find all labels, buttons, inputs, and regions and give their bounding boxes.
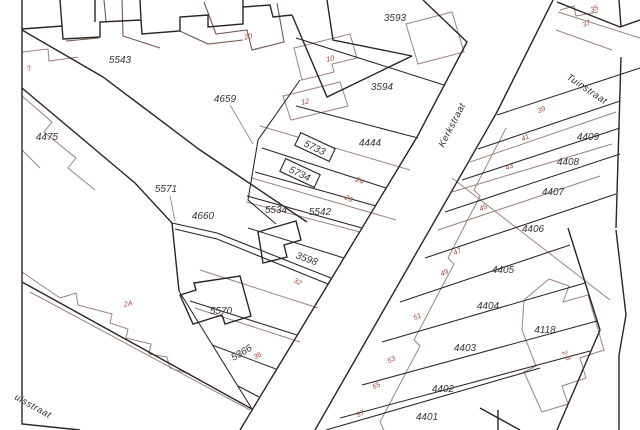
- building-house-12: [283, 82, 348, 120]
- house-number-32: 32: [292, 276, 303, 288]
- parcel-label-4406: 4406: [522, 224, 545, 235]
- building-4118: [522, 279, 604, 412]
- house-number-53: 53: [386, 354, 397, 366]
- parcel-label-3598: 3598: [294, 250, 319, 268]
- parcel-label-3593: 3593: [384, 13, 407, 24]
- parcel-label-4408: 4408: [557, 157, 580, 168]
- parcel-label-4403: 4403: [454, 343, 477, 354]
- building-4475: [22, 96, 95, 190]
- buildings-tuinstraat-north: [556, 6, 640, 50]
- house-number-2a: 2A: [122, 298, 133, 309]
- parcel-label-5542: 5542: [309, 207, 332, 218]
- parcel-label-4660: 4660: [192, 211, 215, 222]
- street-name-tuinstraat: Tuinstraat: [564, 72, 609, 107]
- house-number-26: 26: [342, 192, 354, 204]
- boundary-top-staircase: [22, 0, 292, 39]
- parcel-label-4404: 4404: [477, 301, 500, 312]
- parcel-label-4401: 4401: [416, 412, 438, 423]
- boundary-left-edge: [22, 0, 80, 430]
- parcel-label-5570: 5570: [210, 306, 233, 317]
- parcel-label-4407: 4407: [542, 187, 565, 198]
- parcel-label-5534: 5534: [265, 205, 288, 216]
- boxed-parcel-labels: 5733 5734: [280, 133, 335, 188]
- parcel-label-5733: 5733: [302, 139, 327, 159]
- label-leader-lines: [170, 105, 253, 221]
- house-number-39: 39: [536, 104, 547, 116]
- cadastral-map: 5733 5734 5543 4475 4659 5571 4660 5534 …: [0, 0, 640, 430]
- house-number-37: 37: [581, 17, 593, 29]
- street-names: Kerkstraat Tuinstraat uisstraat: [12, 72, 609, 421]
- house-number-45: 45: [478, 201, 490, 213]
- house-number-24: 24: [353, 174, 365, 186]
- parcel-label-4659: 4659: [214, 94, 237, 105]
- parcel-label-4118: 4118: [534, 325, 556, 336]
- building-topleft: [22, 49, 78, 61]
- house-number-43: 43: [504, 161, 515, 173]
- street-name-uisstraat: uisstraat: [12, 392, 53, 421]
- parcel-label-4444: 4444: [359, 138, 382, 149]
- parcel-label-5543: 5543: [109, 55, 132, 66]
- street-name-kerkstraat: Kerkstraat: [437, 101, 469, 149]
- house-number-51: 51: [412, 311, 423, 323]
- house-number-49: 49: [439, 267, 450, 279]
- parcel-label-4409: 4409: [577, 132, 600, 143]
- house-number-20: 20: [242, 31, 253, 42]
- house-number-55: 55: [371, 379, 383, 391]
- house-number-10: 10: [325, 53, 335, 63]
- house-number-12: 12: [300, 96, 310, 106]
- parcel-label-3594: 3594: [371, 82, 394, 93]
- house-number-35: 35: [589, 2, 601, 14]
- building-top-row: [66, 0, 243, 48]
- boundary-diagonal-2a-south: [22, 282, 252, 409]
- cadastral-map-viewport[interactable]: 5733 5734 5543 4475 4659 5571 4660 5534 …: [0, 0, 640, 430]
- parcel-label-4405: 4405: [492, 265, 515, 276]
- parcel-label-4475: 4475: [36, 132, 59, 143]
- house-number-7: 7: [26, 63, 34, 73]
- boundaries-top-right: [557, 0, 640, 27]
- building-5534-outline: [258, 221, 301, 263]
- house-number-57: 57: [355, 407, 367, 419]
- parcel-label-4402: 4402: [432, 384, 455, 395]
- parcel-label-5734: 5734: [287, 165, 312, 185]
- parcel-label-5571: 5571: [155, 184, 177, 195]
- house-number-2-8: 2-8: [560, 348, 573, 362]
- boundaries-east-strips: [326, 68, 640, 430]
